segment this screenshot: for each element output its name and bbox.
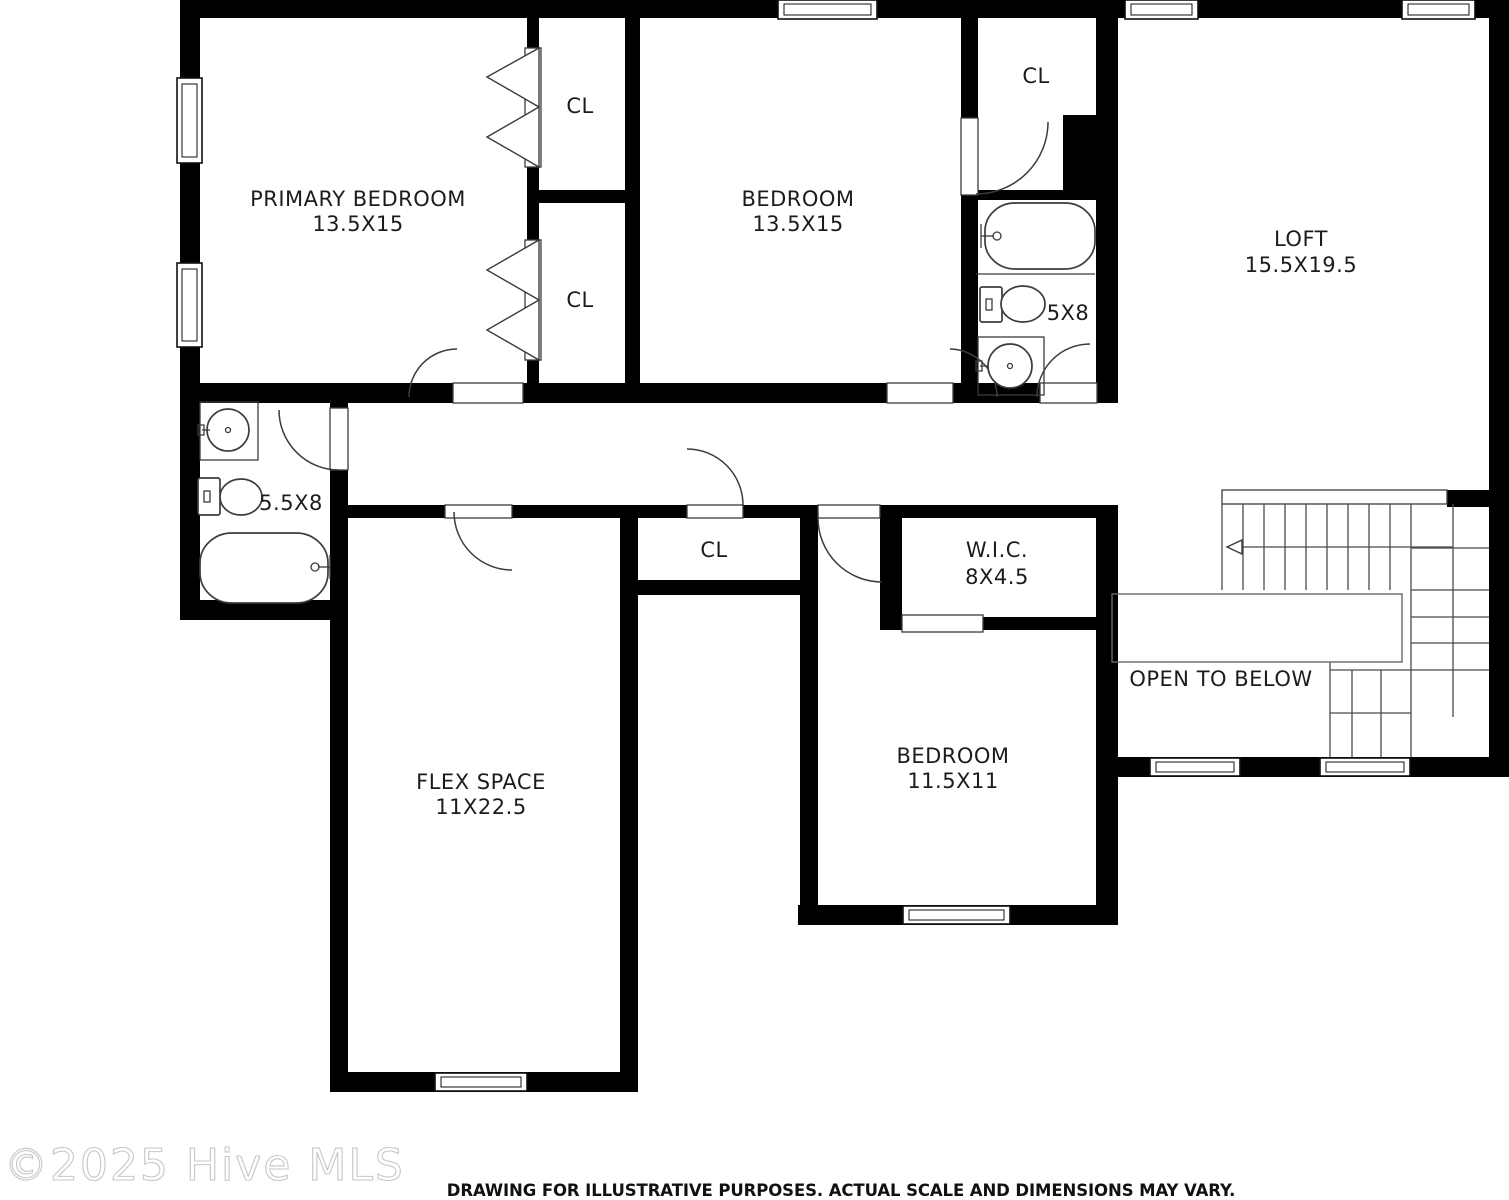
cased-opening [902, 615, 983, 632]
door-leaf [330, 408, 348, 470]
primary-bedroom-label: PRIMARY BEDROOM [250, 187, 466, 211]
bifold-door-icon [487, 107, 539, 167]
window [1150, 758, 1240, 776]
window [1402, 0, 1475, 19]
floor-plan-svg: PRIMARY BEDROOM 13.5X15 CL CL BEDROOM 13… [0, 0, 1509, 1200]
door-leaf [887, 383, 953, 403]
door-leaf [445, 505, 512, 518]
bedroom-upper-label: BEDROOM [741, 187, 854, 211]
hall-bath-fixtures [976, 203, 1095, 395]
window [1125, 0, 1198, 19]
stair-treads [1222, 504, 1489, 757]
flex-space-dims: 11X22.5 [435, 795, 526, 819]
primary-bath-dims: 5.5X8 [259, 491, 323, 515]
loft-label: LOFT [1274, 227, 1328, 251]
wall-segment [800, 505, 818, 925]
toilet-icon [198, 478, 262, 515]
window [903, 906, 1010, 924]
wall-segment [200, 383, 1118, 403]
window [177, 78, 202, 163]
wall-segment [1096, 0, 1118, 403]
flex-space-label: FLEX SPACE [416, 770, 546, 794]
wall-segment [620, 580, 810, 595]
wall-segment [961, 0, 978, 403]
wall-segment [880, 505, 902, 630]
door-leaf [687, 505, 743, 518]
hall-bath-dims: 5X8 [1047, 301, 1090, 325]
windows [177, 0, 1475, 1091]
open-to-below-edge [1112, 594, 1402, 662]
door-swing [818, 518, 882, 582]
floor-plan-page: PRIMARY BEDROOM 13.5X15 CL CL BEDROOM 13… [0, 0, 1509, 1200]
stair-direction-arrow [1227, 540, 1453, 554]
window [435, 1073, 527, 1091]
closet-label: CL [566, 288, 593, 312]
wall-segment [527, 167, 539, 240]
open-to-below-label: OPEN TO BELOW [1129, 667, 1312, 691]
window [778, 0, 877, 19]
stair-landing-edge [1222, 490, 1447, 504]
chase-block [1063, 115, 1096, 193]
wall-segment [1489, 0, 1509, 777]
door-swing [687, 449, 743, 505]
closet-label: CL [566, 94, 593, 118]
door-leaf [961, 118, 978, 195]
door-leaf [1040, 383, 1097, 403]
staircase [1112, 490, 1489, 757]
mls-watermark: ©2025 Hive MLS [4, 1140, 405, 1191]
wall-segment [1096, 505, 1118, 925]
bedroom-upper-dims: 13.5X15 [752, 212, 843, 236]
walls [180, 0, 1509, 1092]
bedroom-lower-dims: 11.5X11 [907, 769, 998, 793]
bathtub-icon [200, 533, 330, 603]
primary-bedroom-dims: 13.5X15 [312, 212, 403, 236]
toilet-icon [980, 286, 1045, 322]
wic-label: W.I.C. [966, 538, 1028, 562]
bifold-door-icon [487, 48, 539, 107]
wall-segment [625, 0, 640, 403]
window [1320, 758, 1410, 776]
closet-label: CL [700, 538, 727, 562]
door-leaf [453, 383, 523, 403]
bifold-door-icon [487, 300, 539, 360]
door-swing [454, 512, 512, 570]
door-leaf [818, 505, 880, 518]
loft-dims: 15.5X19.5 [1245, 253, 1357, 277]
bedroom-lower-label: BEDROOM [896, 744, 1009, 768]
window [177, 263, 202, 347]
disclaimer-text: DRAWING FOR ILLUSTRATIVE PURPOSES. ACTUA… [447, 1181, 1235, 1200]
wall-segment [527, 190, 640, 203]
wic-dims: 8X4.5 [965, 565, 1029, 589]
wall-segment [527, 18, 539, 48]
sink-icon [198, 402, 258, 460]
door-swing [976, 122, 1048, 194]
wall-segment [527, 360, 539, 403]
bifold-door-icon [487, 240, 539, 300]
closet-label: CL [1022, 64, 1049, 88]
